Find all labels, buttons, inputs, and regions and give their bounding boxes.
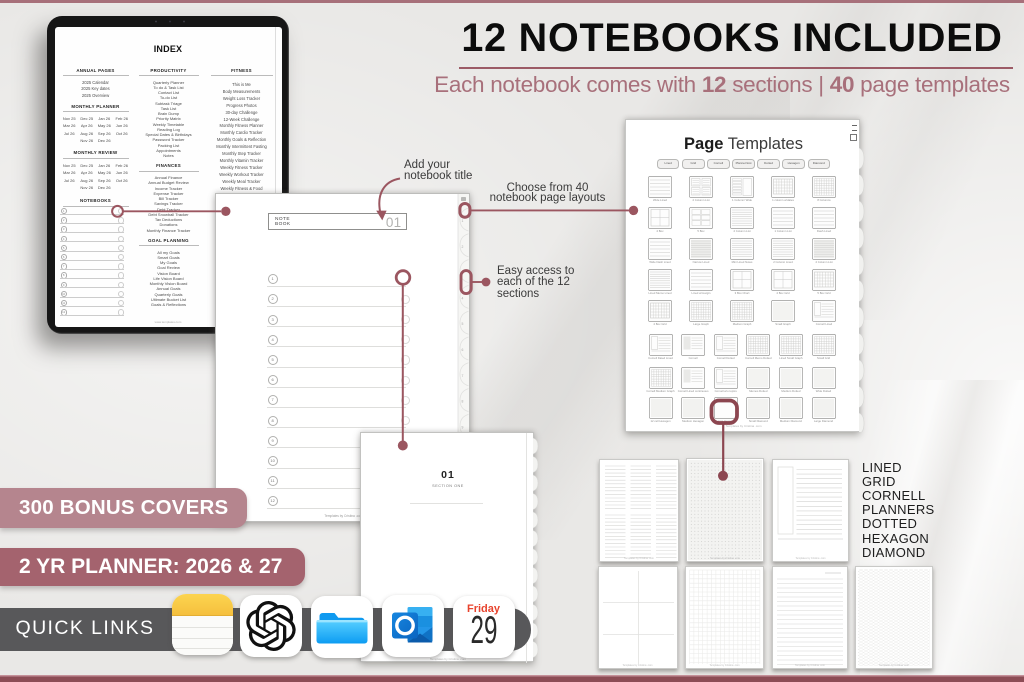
svg-text:4: 4 <box>462 296 464 300</box>
svg-text:6: 6 <box>462 348 464 352</box>
svg-text:9: 9 <box>462 425 464 429</box>
svg-text:1: 1 <box>462 219 464 223</box>
svg-text:2: 2 <box>462 244 464 248</box>
svg-text:7: 7 <box>462 373 464 377</box>
svg-text:5: 5 <box>462 322 464 326</box>
svg-text:8: 8 <box>462 399 464 403</box>
svg-text:3: 3 <box>462 270 464 274</box>
